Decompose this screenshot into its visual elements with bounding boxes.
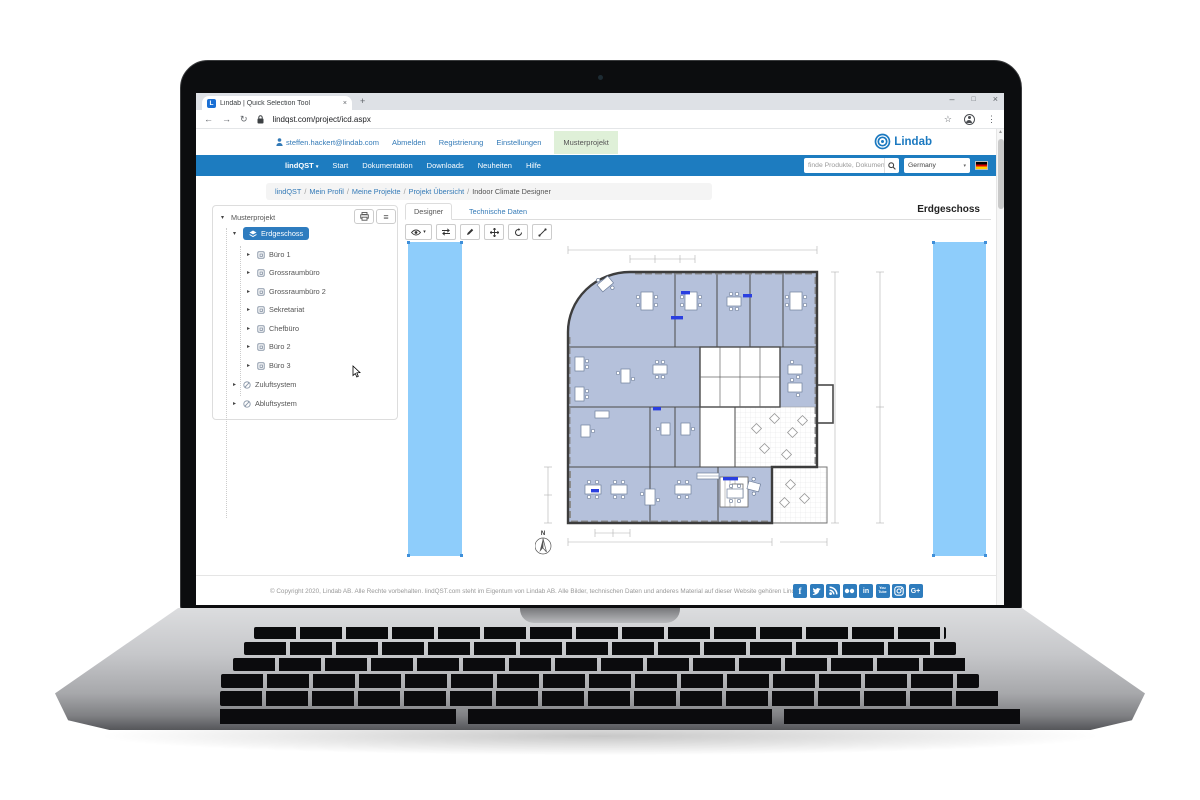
main-navbar: lindQST ▾ Start Dokumentation Downloads … xyxy=(196,155,996,176)
copyright-text: © Copyright 2020, Lindab AB. Alle Rechte… xyxy=(270,588,802,595)
breadcrumb: lindQST / Mein Profil / Meine Projekte /… xyxy=(266,183,712,200)
tree-node-zuluftsystem[interactable]: ▸ Zuluftsystem xyxy=(233,380,296,389)
settings-link[interactable]: Einstellungen xyxy=(496,138,541,147)
tree-node-grossraumbuero[interactable]: ▸ Grossraumbüro xyxy=(247,268,320,277)
tree-node-chefbuero[interactable]: ▸ Chefbüro xyxy=(247,324,299,333)
instagram-icon[interactable] xyxy=(892,584,906,598)
new-tab-button[interactable]: + xyxy=(360,97,365,106)
room-icon xyxy=(257,362,265,370)
search-icon xyxy=(888,162,896,170)
breadcrumb-sep: / xyxy=(347,187,349,196)
country-select[interactable]: Germany ▾ xyxy=(904,158,970,173)
fan-icon xyxy=(243,381,251,389)
rotate-icon xyxy=(514,228,523,237)
tree-node-buero-2[interactable]: ▸ Büro 2 xyxy=(247,342,291,351)
youtube-icon[interactable]: YouTube xyxy=(876,584,890,598)
fan-icon xyxy=(243,400,251,408)
printer-icon xyxy=(360,212,369,221)
floor-layers-icon xyxy=(249,230,257,238)
caret-right-icon: ▸ xyxy=(247,288,253,295)
chevron-down-icon: ▾ xyxy=(963,163,966,169)
site-header: steffen.hackert@lindab.com Abmelden Regi… xyxy=(196,129,996,155)
user-email-link[interactable]: steffen.hackert@lindab.com xyxy=(286,138,379,147)
maximize-icon[interactable]: □ xyxy=(972,95,976,104)
breadcrumb-meine-projekte[interactable]: Meine Projekte xyxy=(352,187,401,196)
facebook-icon[interactable]: f xyxy=(793,584,807,598)
tab-close-icon[interactable]: × xyxy=(343,100,347,107)
google-plus-icon[interactable]: G+ xyxy=(909,584,923,598)
profile-avatar-icon[interactable] xyxy=(964,114,975,125)
nav-brand-lindqst[interactable]: lindQST ▾ xyxy=(285,161,318,170)
floor-title: Erdgeschoss xyxy=(816,204,980,215)
page-scrollbar[interactable]: ▲ xyxy=(996,129,1004,605)
breadcrumb-mein-profil[interactable]: Mein Profil xyxy=(309,187,343,196)
supply-riser-left[interactable] xyxy=(408,242,462,556)
user-icon xyxy=(276,138,283,146)
caret-down-icon[interactable]: ▾ xyxy=(221,214,227,221)
window-controls: – □ × xyxy=(949,95,998,104)
tab-designer[interactable]: Designer xyxy=(405,203,452,220)
caret-down-icon: ▾ xyxy=(233,230,239,237)
tree-node-buero-3[interactable]: ▸ Büro 3 xyxy=(247,361,291,370)
keyboard-row xyxy=(254,627,946,639)
room-icon xyxy=(257,288,265,296)
caret-right-icon: ▸ xyxy=(233,381,239,388)
room-icon xyxy=(257,343,265,351)
lindab-logo-text: Lindab xyxy=(894,136,932,148)
caret-right-icon: ▸ xyxy=(233,400,239,407)
browser-tab-bar: L Lindab | Quick Selection Tool × + – □ … xyxy=(196,93,1004,110)
nav-item-dokumentation[interactable]: Dokumentation xyxy=(362,161,412,170)
keyboard-row-spacebar xyxy=(220,709,1020,724)
designer-toolbar: ▾ xyxy=(405,224,552,240)
chevron-down-icon: ▾ xyxy=(423,229,426,235)
forward-icon[interactable]: → xyxy=(222,115,231,124)
reload-icon[interactable]: ↻ xyxy=(240,115,248,124)
caret-right-icon: ▸ xyxy=(247,325,253,332)
breadcrumb-lindqst[interactable]: lindQST xyxy=(275,187,301,196)
search-box: finde Produkte, Dokumenta xyxy=(804,158,899,173)
rotate-button[interactable] xyxy=(508,224,528,240)
room-icon xyxy=(257,325,265,333)
minimize-icon[interactable]: – xyxy=(949,95,954,104)
lindab-logo-icon xyxy=(874,133,891,150)
linkedin-icon[interactable]: in xyxy=(859,584,873,598)
germany-flag-icon xyxy=(975,161,988,170)
bookmark-star-icon[interactable]: ☆ xyxy=(944,115,952,124)
scrollbar-thumb[interactable] xyxy=(998,139,1004,209)
terrace xyxy=(772,467,827,523)
caret-right-icon: ▸ xyxy=(247,362,253,369)
search-button[interactable] xyxy=(884,158,899,173)
breadcrumb-sep: / xyxy=(304,187,306,196)
twitter-icon[interactable] xyxy=(810,584,824,598)
laptop-keyboard xyxy=(220,624,980,724)
tree-node-grossraumbuero-2[interactable]: ▸ Grossraumbüro 2 xyxy=(247,287,326,296)
compass-label: N xyxy=(541,531,545,537)
page-footer: © Copyright 2020, Lindab AB. Alle Rechte… xyxy=(196,575,996,605)
tree-node-buero-1[interactable]: ▸ Büro 1 xyxy=(247,250,291,259)
url-text[interactable]: lindqst.com/project/icd.aspx xyxy=(273,115,371,124)
favicon-icon: L xyxy=(207,99,216,108)
breadcrumb-sep: / xyxy=(467,187,469,196)
edit-pencil-button[interactable] xyxy=(460,224,480,240)
browser-tab[interactable]: L Lindab | Quick Selection Tool × xyxy=(202,96,352,110)
caret-right-icon: ▸ xyxy=(247,343,253,350)
close-icon[interactable]: × xyxy=(993,95,998,104)
room-icon xyxy=(257,251,265,259)
visibility-eye-button[interactable]: ▾ xyxy=(405,224,432,240)
breadcrumb-current: Indoor Climate Designer xyxy=(472,187,551,196)
swap-arrows-icon xyxy=(441,228,451,236)
tree-node-erdgeschoss-selected[interactable]: Erdgeschoss xyxy=(243,227,309,240)
keyboard-row xyxy=(221,674,979,688)
register-link[interactable]: Registrierung xyxy=(439,138,484,147)
laptop-trackpad-notch xyxy=(520,608,680,623)
back-icon[interactable]: ← xyxy=(204,115,213,124)
room-icon xyxy=(257,306,265,314)
keyboard-row xyxy=(233,658,967,671)
caret-right-icon: ▸ xyxy=(247,269,253,276)
browser-menu-icon[interactable]: ⋮ xyxy=(987,115,996,124)
social-links: f in YouTube G+ xyxy=(793,584,923,598)
tab-title: Lindab | Quick Selection Tool xyxy=(220,100,339,107)
tree-root-node[interactable]: ▾ Musterprojekt xyxy=(221,213,275,222)
move-button[interactable] xyxy=(484,224,504,240)
laptop-screen: L Lindab | Quick Selection Tool × + – □ … xyxy=(196,93,1004,605)
project-tree-panel: ≡ ▾ Musterprojekt ▾ Erdgeschoss ▸ Büro 1… xyxy=(212,205,398,420)
list-view-button[interactable]: ≡ xyxy=(376,209,396,224)
pencil-icon xyxy=(466,228,474,236)
tab-technische-daten[interactable]: Technische Daten xyxy=(461,203,535,219)
lindab-logo[interactable]: Lindab xyxy=(874,133,932,150)
browser-address-bar: ← → ↻ lindqst.com/project/icd.aspx ☆ ⋮ xyxy=(196,110,1004,129)
keyboard-row xyxy=(220,691,1002,706)
nav-item-start[interactable]: Start xyxy=(332,161,348,170)
eye-icon xyxy=(411,229,421,236)
active-project-button[interactable]: Musterprojekt xyxy=(554,131,617,154)
mouse-cursor xyxy=(352,365,361,378)
chevron-down-icon: ▾ xyxy=(316,164,319,170)
compass-icon: N xyxy=(535,531,551,554)
keyboard-row xyxy=(244,642,956,655)
diagonal-arrow-icon xyxy=(538,228,547,237)
room-icon xyxy=(257,269,265,277)
laptop-camera xyxy=(598,75,603,80)
breadcrumb-sep: / xyxy=(404,187,406,196)
tree-floor-caret[interactable]: ▾ xyxy=(233,230,239,237)
search-input[interactable]: finde Produkte, Dokumenta xyxy=(804,162,884,169)
side-room xyxy=(817,385,833,423)
caret-right-icon: ▸ xyxy=(247,306,253,313)
move-cross-icon xyxy=(490,228,499,237)
breadcrumb-projekt-uebersicht[interactable]: Projekt Übersicht xyxy=(409,187,465,196)
logout-link[interactable]: Abmelden xyxy=(392,138,426,147)
padlock-icon xyxy=(257,115,264,124)
scroll-up-icon: ▲ xyxy=(998,129,1003,135)
nav-item-hilfe[interactable]: Hilfe xyxy=(526,161,541,170)
tree-node-abluftsystem[interactable]: ▸ Abluftsystem xyxy=(233,399,297,408)
caret-right-icon: ▸ xyxy=(247,251,253,258)
supply-riser-right[interactable] xyxy=(933,242,986,556)
nav-item-neuheiten[interactable]: Neuheiten xyxy=(478,161,512,170)
nav-item-downloads[interactable]: Downloads xyxy=(427,161,464,170)
rss-icon[interactable] xyxy=(826,584,840,598)
flickr-icon[interactable] xyxy=(843,584,857,598)
floor-plan-canvas[interactable]: N xyxy=(535,237,930,558)
print-button[interactable] xyxy=(354,209,374,224)
tree-node-sekretariat[interactable]: ▸ Sekretariat xyxy=(247,305,304,314)
swap-arrows-button[interactable] xyxy=(436,224,456,240)
